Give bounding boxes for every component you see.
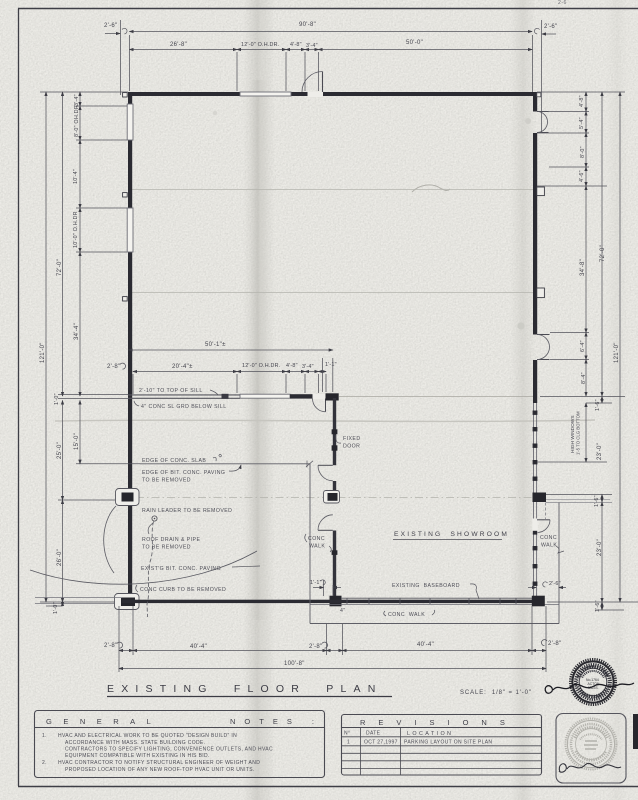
svg-text:26'-8": 26'-8" xyxy=(170,42,187,48)
svg-text:1'-0": 1'-0" xyxy=(53,602,59,614)
svg-text:2'-6": 2'-6" xyxy=(104,23,117,29)
svg-text:GENERAL: GENERAL xyxy=(46,717,162,726)
svg-text:EDGE OF BIT. CONC. PAVING: EDGE OF BIT. CONC. PAVING xyxy=(142,470,225,476)
svg-text:90'-8": 90'-8" xyxy=(299,22,316,28)
svg-text:12'-0" O.H.DR.: 12'-0" O.H.DR. xyxy=(242,363,280,369)
svg-text:2'-6": 2'-6" xyxy=(544,24,557,30)
svg-text:10'-4": 10'-4" xyxy=(73,169,79,184)
svg-text:1.: 1. xyxy=(42,733,47,739)
svg-text:HVAC CONTRACTOR TO NOTIFY STRU: HVAC CONTRACTOR TO NOTIFY STRUCTURAL ENG… xyxy=(58,760,260,766)
svg-text:REVISIONS: REVISIONS xyxy=(360,718,518,727)
svg-text:3'-4": 3'-4" xyxy=(306,43,318,49)
svg-text:34'-4": 34'-4" xyxy=(74,323,80,340)
svg-text:1'-6": 1'-6" xyxy=(594,495,600,507)
svg-text:26'-0": 26'-0" xyxy=(57,549,63,566)
svg-text:SCALE: 1/8" = 1'-0": SCALE: 1/8" = 1'-0" xyxy=(460,690,532,696)
svg-text:ACCORDANCE WITH MASS. STATE BU: ACCORDANCE WITH MASS. STATE BUILDING COD… xyxy=(65,740,205,746)
svg-text:1'-6": 1'-6" xyxy=(595,600,601,612)
svg-text:DATE: DATE xyxy=(366,731,381,737)
svg-text:4'-8": 4'-8" xyxy=(290,42,302,48)
svg-text:1'-1": 1'-1" xyxy=(325,362,337,368)
svg-text:4'-8": 4'-8" xyxy=(579,95,585,107)
svg-text:TO BE REMOVED: TO BE REMOVED xyxy=(142,545,191,551)
svg-text:2'-8": 2'-8" xyxy=(309,644,322,650)
svg-text:HVAC AND ELECTRICAL WORK TO BE: HVAC AND ELECTRICAL WORK TO BE QUOTED "D… xyxy=(58,733,237,739)
svg-text:8'-0" OH.DR: 8'-0" OH.DR xyxy=(74,105,80,137)
svg-text:12'-0" O.H.DR.: 12'-0" O.H.DR. xyxy=(241,42,279,48)
svg-text:DOOR: DOOR xyxy=(343,444,360,450)
svg-text:40'-4": 40'-4" xyxy=(417,642,434,648)
svg-text:1'-5 TO CLG BOTTOM: 1'-5 TO CLG BOTTOM xyxy=(576,411,581,455)
svg-text:EXISTING BASEBOARD: EXISTING BASEBOARD xyxy=(392,583,460,589)
svg-text:CONC: CONC xyxy=(540,535,557,541)
svg-text:1'-1": 1'-1" xyxy=(310,580,322,586)
svg-text:50'-0": 50'-0" xyxy=(406,40,423,46)
svg-text:2'-6": 2'-6" xyxy=(549,581,561,587)
svg-text:EQUIPMENT COMPATIBLE WITH EXIS: EQUIPMENT COMPATIBLE WITH EXISTING IN HI… xyxy=(65,753,210,759)
svg-text:PARKING LAYOUT ON SITE PLAN: PARKING LAYOUT ON SITE PLAN xyxy=(404,740,492,746)
svg-text:25'-0": 25'-0" xyxy=(57,442,63,459)
svg-text:CONC: CONC xyxy=(308,536,325,542)
svg-text:TO BE REMOVED: TO BE REMOVED xyxy=(142,478,191,484)
svg-text:2'-8": 2'-8" xyxy=(548,641,561,647)
svg-text:PROPOSED LOCATION OF ANY NEW R: PROPOSED LOCATION OF ANY NEW ROOF-TOP HV… xyxy=(65,767,255,773)
svg-text:EXISTING SHOWROOM: EXISTING SHOWROOM xyxy=(394,531,509,538)
svg-text:40'-4": 40'-4" xyxy=(190,644,207,650)
svg-text:34'-8": 34'-8" xyxy=(580,259,586,276)
svg-text:3'-4": 3'-4" xyxy=(74,94,80,106)
svg-text:72'-0": 72'-0" xyxy=(600,245,606,262)
svg-text:1'-6": 1'-6" xyxy=(595,399,601,411)
svg-text:4" CONC SL GRD BELOW SILL: 4" CONC SL GRD BELOW SILL xyxy=(141,404,227,410)
svg-text:1: 1 xyxy=(347,740,350,746)
svg-text:CONC WALK: CONC WALK xyxy=(388,612,425,618)
svg-text:N°: N° xyxy=(344,731,350,737)
svg-text:5'-4": 5'-4" xyxy=(579,117,585,129)
svg-text:4": 4" xyxy=(340,608,346,614)
svg-text:WALK: WALK xyxy=(541,543,557,549)
svg-text:6'-4": 6'-4" xyxy=(580,340,586,352)
svg-text:23'-0": 23'-0" xyxy=(597,443,603,460)
svg-text:EDGE OF CONC. SLAB: EDGE OF CONC. SLAB xyxy=(142,458,206,464)
svg-text:2-6: 2-6 xyxy=(558,0,567,6)
svg-text:15'-0": 15'-0" xyxy=(74,433,80,450)
svg-text:RAIN LEADER TO BE REMOVED: RAIN LEADER TO BE REMOVED xyxy=(142,508,232,514)
svg-text:3'-4": 3'-4" xyxy=(302,364,314,370)
svg-text:WALK: WALK xyxy=(309,544,325,550)
svg-text:LOCATION: LOCATION xyxy=(407,731,453,737)
svg-text:8'-4": 8'-4" xyxy=(581,372,587,384)
svg-text:NOTES :: NOTES : xyxy=(230,717,323,726)
svg-text:4'-8": 4'-8" xyxy=(286,363,298,369)
svg-text:121'-0": 121'-0" xyxy=(40,342,46,363)
svg-text:2'-8": 2'-8" xyxy=(104,643,117,649)
svg-text:EXISTING FLOOR PLAN: EXISTING FLOOR PLAN xyxy=(107,683,382,695)
svg-text:100'-8": 100'-8" xyxy=(284,661,305,667)
svg-text:10'-0" O.H.DR: 10'-0" O.H.DR xyxy=(73,211,79,248)
svg-text:2'-10" TO TOP OF SILL: 2'-10" TO TOP OF SILL xyxy=(139,388,203,394)
svg-text:2'-8": 2'-8" xyxy=(107,364,120,370)
svg-text:CONC CURB TO BE REMOVED: CONC CURB TO BE REMOVED xyxy=(140,587,226,593)
svg-text:50'-1"±: 50'-1"± xyxy=(205,342,226,348)
svg-text:20'-4"±: 20'-4"± xyxy=(172,364,193,370)
svg-text:FIXED: FIXED xyxy=(343,436,361,442)
svg-text:4'-6": 4'-6" xyxy=(579,170,585,182)
svg-text:CONTRACTORS TO SPECIFY LIGHTIN: CONTRACTORS TO SPECIFY LIGHTING, CONVENI… xyxy=(65,747,273,753)
svg-text:23'-0": 23'-0" xyxy=(597,539,603,556)
svg-text:121'-0": 121'-0" xyxy=(614,342,620,363)
svg-text:ROOF DRAIN & PIPE: ROOF DRAIN & PIPE xyxy=(142,537,200,543)
svg-text:1'-0": 1'-0" xyxy=(54,393,60,405)
svg-text:72'-0": 72'-0" xyxy=(57,259,63,276)
svg-text:OCT 27,1997: OCT 27,1997 xyxy=(364,740,398,746)
svg-text:8'-0": 8'-0" xyxy=(580,146,586,158)
svg-text:2.: 2. xyxy=(42,760,47,766)
